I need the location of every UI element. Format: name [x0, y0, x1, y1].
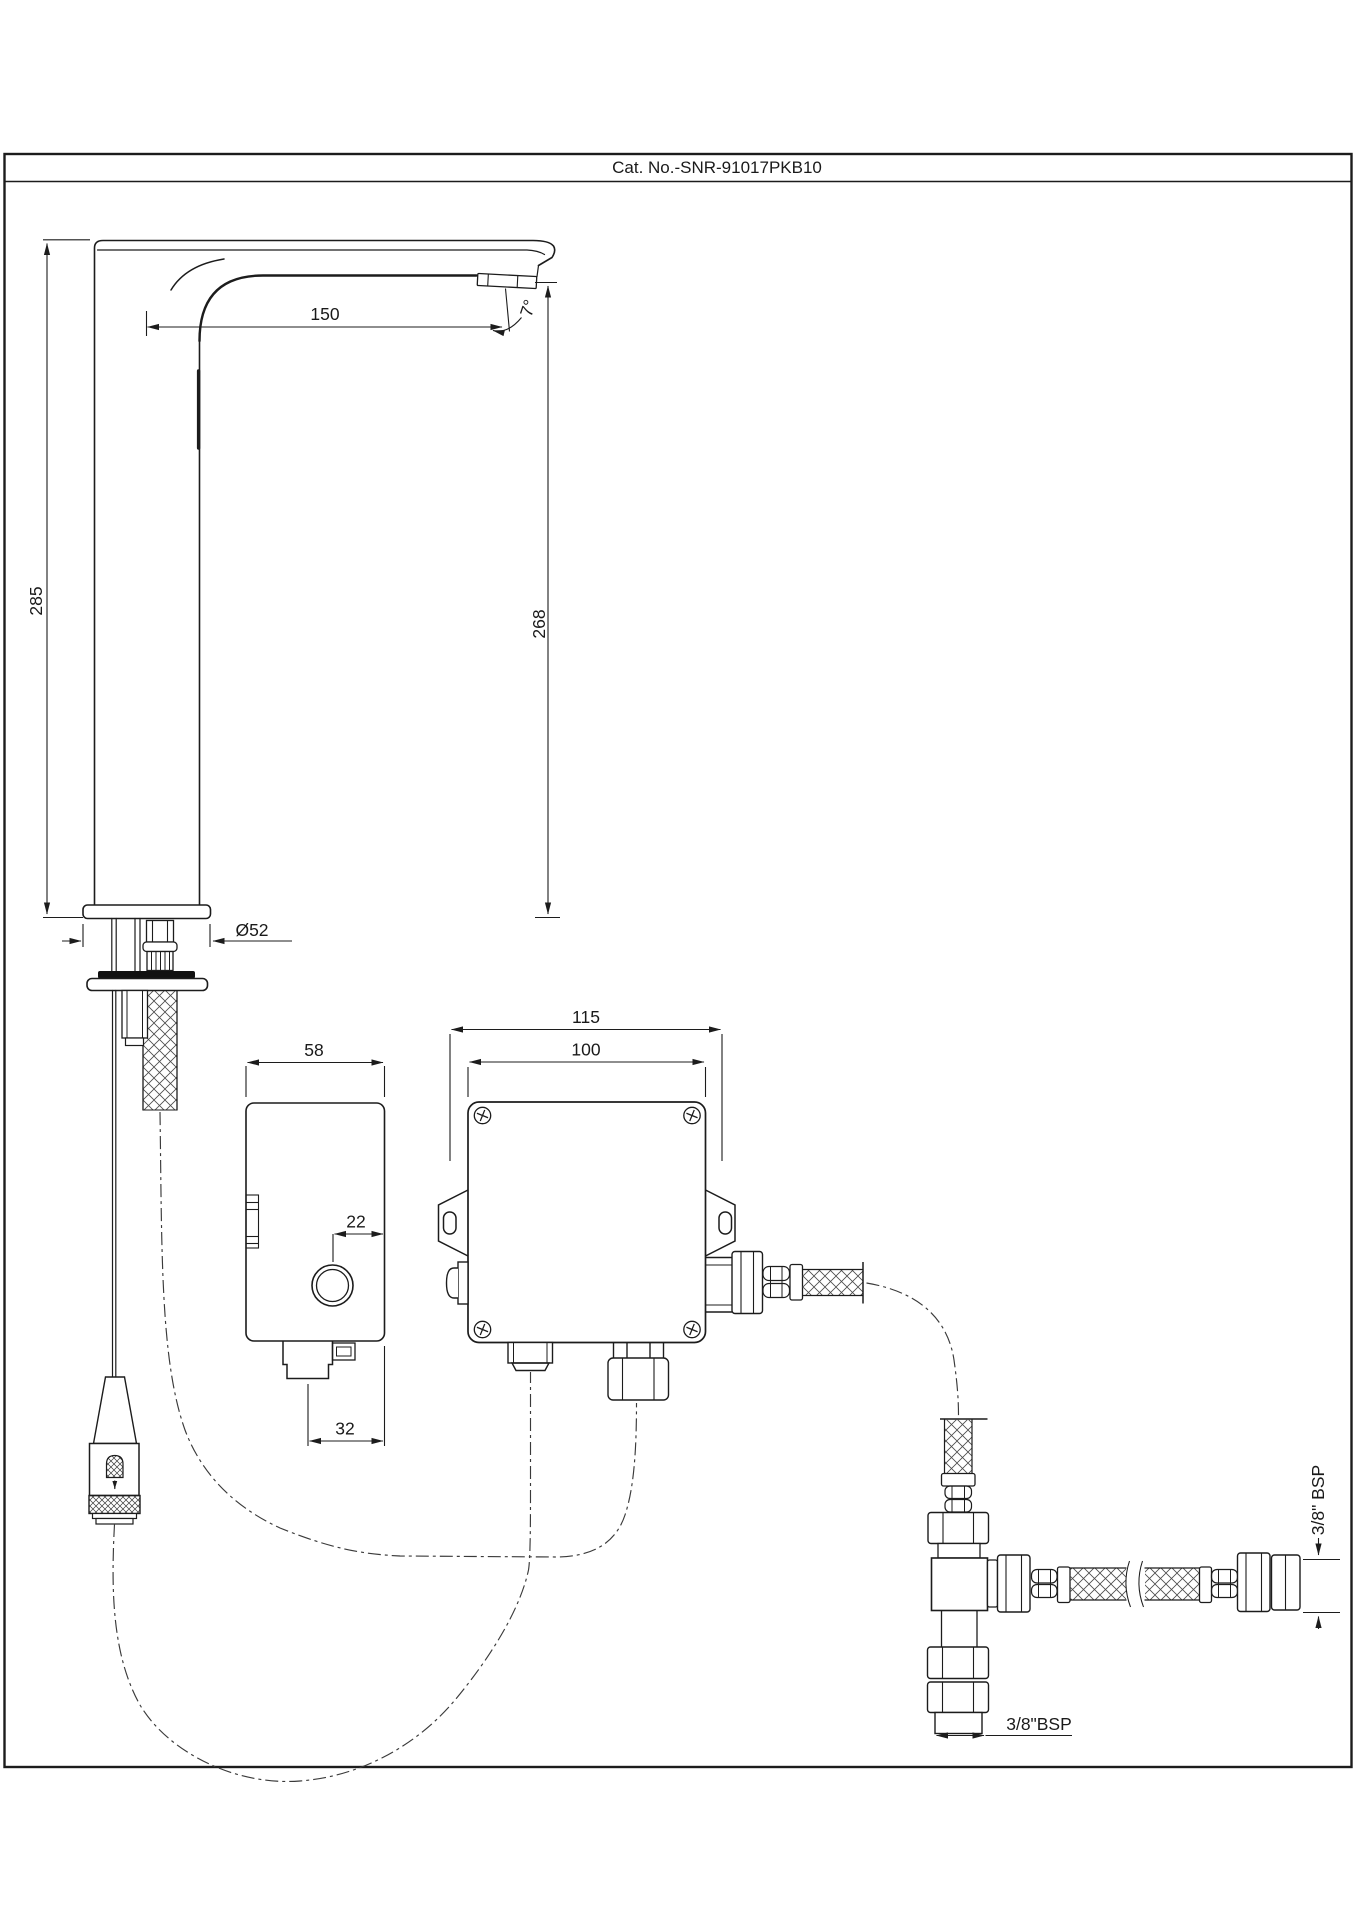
hex-nut: [608, 1358, 669, 1400]
spout-bend-accent: [171, 259, 224, 290]
connector-side-tab-inner: [337, 1347, 352, 1356]
mounting-tab-left: [439, 1190, 469, 1256]
mounting-tab-right: [706, 1190, 736, 1256]
page-title: Cat. No.-SNR-91017PKB10: [612, 158, 822, 177]
dim-label-58: 58: [304, 1040, 323, 1060]
washer-plate: [87, 979, 208, 991]
hose-break-mark: [1139, 1561, 1144, 1607]
dim-label-22: 22: [346, 1212, 365, 1232]
spout-end-face: [537, 266, 539, 277]
cable-port-bottom: [508, 1343, 553, 1371]
hose-break-mark: [1126, 1561, 1131, 1607]
sensor-cable: [113, 991, 116, 1378]
drawing-frame: [5, 154, 1352, 1767]
dim-label-285: 285: [26, 586, 46, 615]
inlet-hose-route: [867, 1283, 959, 1416]
hex-nut: [732, 1252, 763, 1314]
hex-nut: [928, 1647, 989, 1679]
mounting-nut: [122, 991, 148, 1046]
control-unit: [246, 1103, 385, 1379]
dim-label-bsp-bottom: 3/8"BSP: [1006, 1714, 1072, 1734]
frame-border: [5, 154, 1352, 1767]
hex-nut: [928, 1682, 989, 1713]
dimension-100: [468, 1062, 706, 1097]
shank-studs: [112, 919, 140, 972]
aerator: [477, 273, 537, 288]
dim-label-7deg: 7°: [516, 297, 540, 319]
hex-nut: [1238, 1553, 1271, 1612]
hose-connector: [143, 921, 177, 971]
dim-label-dia52: Ø52: [235, 920, 268, 940]
inlet-fitting-right: [706, 1252, 864, 1314]
hex-nut: [928, 1513, 989, 1544]
dimension-58: [246, 1063, 385, 1098]
connector-side-tab: [333, 1343, 356, 1360]
tee-body: [932, 1558, 988, 1611]
sensor-port-left: [447, 1262, 469, 1304]
base-flange: [83, 905, 211, 919]
dim-label-bsp-right: 3/8" BSP: [1308, 1465, 1328, 1535]
sensor-cable-route: [113, 1372, 530, 1781]
faucet-outline: [95, 241, 555, 906]
dim-label-268: 268: [529, 609, 549, 638]
hex-nut: [998, 1555, 1031, 1612]
rubber-seal: [98, 971, 195, 979]
dim-label-115: 115: [572, 1007, 600, 1027]
drawing-page: Cat. No.-SNR-91017PKB10: [0, 0, 1356, 1920]
control-box-body: [468, 1102, 706, 1343]
sensor-cable-plug: [89, 1377, 140, 1524]
inlet-hose: [803, 1270, 864, 1296]
dim-label-32: 32: [335, 1419, 354, 1439]
valve-outlet-bottom: [608, 1343, 669, 1401]
control-unit-connector: [283, 1341, 333, 1379]
dimension-bsp-right: [1303, 1538, 1340, 1629]
tee-top-hose: [940, 1419, 988, 1512]
dim-label-100: 100: [571, 1040, 600, 1060]
plug-keyhole-icon: [107, 1456, 124, 1478]
plug-knurled-ring: [89, 1496, 140, 1514]
dim-label-150: 150: [310, 304, 339, 324]
tee-bottom-thread: [935, 1713, 982, 1734]
tee-bottom-branch: [928, 1611, 989, 1734]
technical-drawing: Cat. No.-SNR-91017PKB10: [0, 0, 1356, 1920]
dimension-285: [43, 240, 90, 918]
dimension-268: [535, 283, 560, 918]
tee-right-branch: [988, 1553, 1301, 1612]
tee-assembly: [928, 1419, 1301, 1734]
faucet-top-inner-line: [98, 250, 545, 255]
control-box: [439, 1102, 864, 1400]
